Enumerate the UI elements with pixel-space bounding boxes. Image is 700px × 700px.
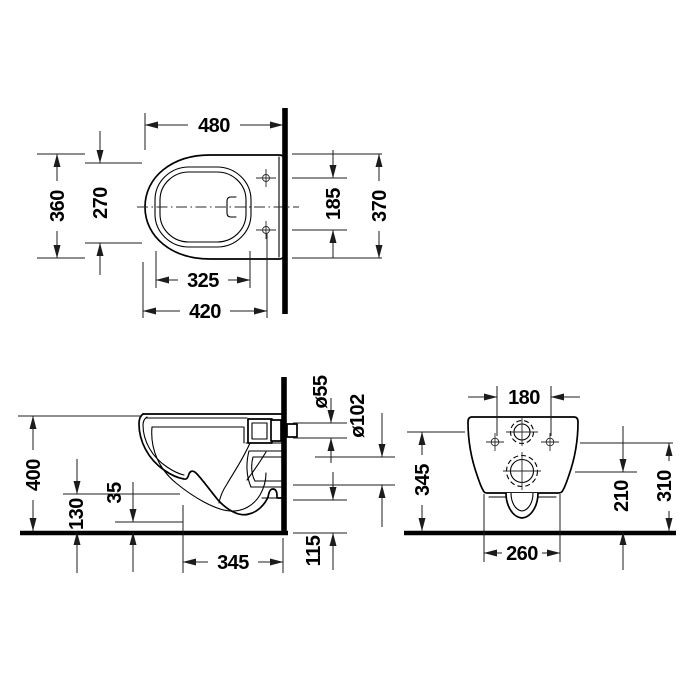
side-view: 400 130 35 345 ø55 ø102	[18, 375, 395, 574]
dim-345-side: 345	[183, 552, 283, 574]
dim-480: 480	[145, 115, 283, 137]
dim-400: 400	[23, 416, 45, 531]
dim-label-480: 480	[198, 115, 230, 137]
dim-345-rear: 345	[412, 432, 434, 531]
dim-260: 260	[484, 543, 560, 565]
rear-view: 180 345 210 310 260	[404, 386, 676, 570]
dim-label-360: 360	[47, 190, 69, 222]
dim-370: 370	[369, 154, 391, 258]
dim-325: 325	[156, 270, 250, 292]
dim-label-210: 210	[611, 480, 633, 512]
dim-label-270: 270	[90, 187, 112, 219]
trap-channel-1	[219, 443, 250, 503]
dim-label-35: 35	[104, 482, 126, 504]
toilet-dimension-drawing: 480 360 270 185 370 325	[0, 0, 700, 700]
dim-35: 35	[104, 482, 133, 572]
dim-115: 115	[303, 472, 333, 570]
dim-label-345-side: 345	[217, 552, 249, 574]
dim-label-180: 180	[508, 387, 540, 409]
dim-label-supply-diameter: ø55	[310, 375, 332, 408]
outlet-pipe-cap	[247, 451, 255, 487]
dim-310: 310	[654, 443, 676, 531]
dim-label-310: 310	[654, 470, 676, 502]
extension-lines-side	[18, 416, 395, 573]
supply-pipe-through-wall	[287, 424, 297, 437]
dim-label-400: 400	[23, 459, 45, 491]
dim-label-130: 130	[66, 498, 88, 530]
dim-supply-diameter: ø55	[310, 375, 332, 463]
trap-channel-2	[247, 452, 266, 480]
dim-210: 210	[611, 426, 633, 570]
dim-label-115: 115	[303, 535, 325, 566]
toilet-inner-front	[143, 417, 184, 475]
dim-130: 130	[66, 459, 88, 573]
top-view: 480 360 270 185 370 325	[37, 108, 391, 323]
dim-outlet-diameter: ø102	[347, 394, 382, 527]
dim-label-325: 325	[187, 270, 219, 292]
dim-label-420: 420	[189, 301, 221, 323]
dim-270: 270	[90, 131, 112, 275]
technical-drawing-canvas: 480 360 270 185 370 325	[0, 0, 700, 700]
dim-420: 420	[143, 301, 267, 323]
dim-label-370: 370	[369, 190, 391, 222]
dim-360: 360	[47, 154, 69, 258]
supply-stub	[271, 420, 281, 441]
dim-label-outlet-diameter: ø102	[347, 394, 369, 438]
dim-185: 185	[323, 150, 345, 258]
dim-label-185: 185	[323, 188, 345, 220]
dim-label-260: 260	[506, 543, 538, 565]
dim-label-345-rear: 345	[412, 464, 434, 496]
dim-180: 180	[468, 387, 580, 409]
